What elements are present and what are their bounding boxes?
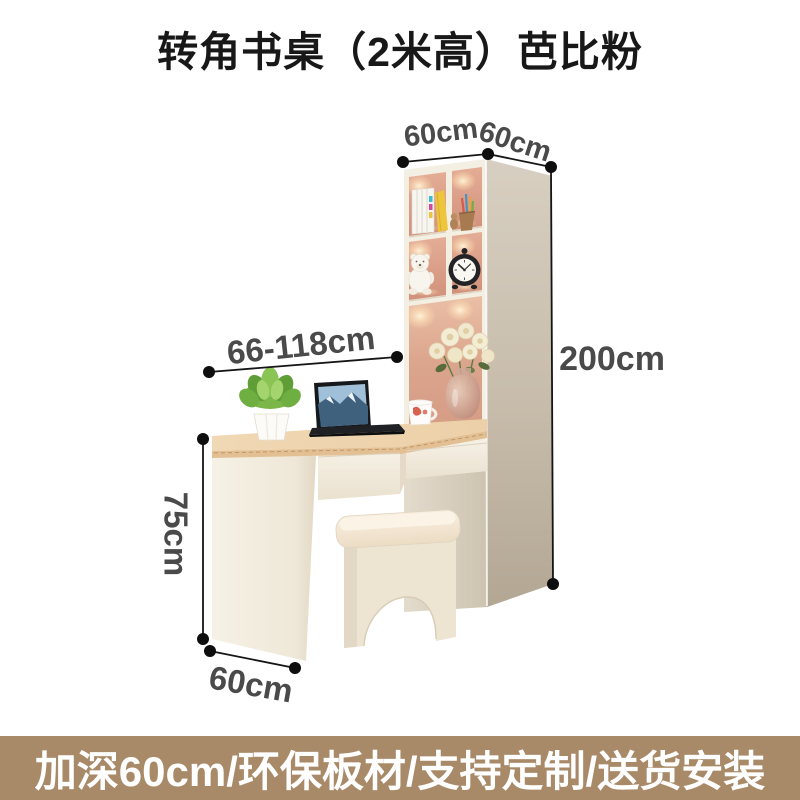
product-card: 转角书桌（2米高）芭比粉 (0, 0, 800, 800)
desk-left-leg (212, 452, 316, 661)
product-illustration: 60cm 60cm 66-118cm 200cm 75cm 60cm (0, 0, 800, 800)
promo-banner-text: 加深60cm/环保板材/支持定制/送货安装 (35, 738, 765, 799)
stool (335, 509, 461, 648)
books (412, 188, 448, 234)
dim-label-height: 200cm (559, 340, 665, 378)
desk-drawer-left (318, 450, 400, 500)
dim-label-top-depth: 60cm (402, 113, 480, 154)
succulent-plant (235, 367, 304, 440)
laptop (309, 380, 405, 437)
promo-banner: 加深60cm/环保板材/支持定制/送货安装 (0, 736, 800, 800)
cabinet-corner-edge (486, 160, 487, 606)
dim-label-desk-height: 75cm (158, 492, 195, 576)
dim-label-desk-length: 66-118cm (225, 319, 377, 371)
cabinet-side-panel (486, 159, 553, 607)
